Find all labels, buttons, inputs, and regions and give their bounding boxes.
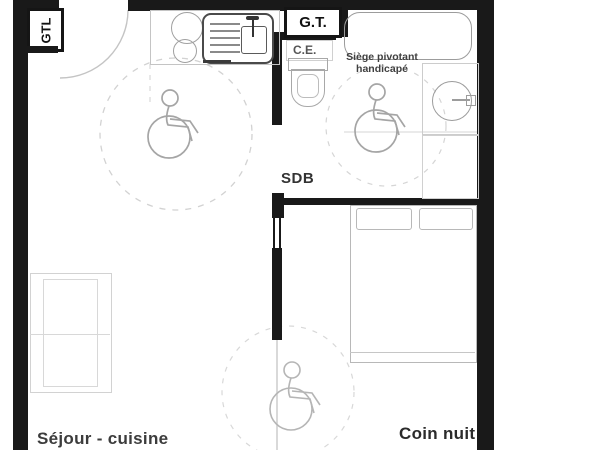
ce-label: C.E.	[293, 43, 316, 57]
gtl-label: GTL	[38, 17, 53, 43]
washbasin-faucet-base	[466, 95, 476, 106]
shower-area	[422, 135, 479, 199]
wall-gtl-stub	[27, 46, 58, 53]
toilet-bowl	[297, 74, 319, 98]
gt-box: G.T.	[284, 7, 342, 38]
sofa-cushion	[43, 279, 98, 387]
bathroom-label: SDB	[281, 170, 314, 187]
wheelchair-icon-bathroom	[355, 84, 405, 152]
bedroom-label: Coin nuit	[399, 424, 475, 444]
wall-left	[13, 0, 28, 450]
wall-top-right	[338, 0, 478, 10]
sink-drainer-line	[210, 30, 240, 32]
wall-partition	[272, 248, 282, 340]
living-label: Séjour - cuisine	[37, 429, 168, 449]
sofa-divider-line	[30, 334, 110, 335]
sink-basin	[241, 26, 267, 54]
counter-edge-mark	[203, 60, 231, 63]
cooktop-burner-icon	[173, 39, 197, 63]
sink-drainer-line	[210, 37, 240, 39]
gt-label: G.T.	[299, 14, 327, 31]
wheelchair-turning-circle-living	[100, 58, 252, 210]
floor-plan: GTL G.T. C.E. Siège pivotant handicapé S…	[0, 0, 600, 450]
wall-partition-post	[272, 193, 284, 218]
seat-note: Siège pivotant handicapé	[336, 51, 428, 75]
wall-pocket-door-rail-right	[279, 218, 281, 248]
wall-right	[477, 0, 494, 450]
pillow-icon	[419, 208, 473, 230]
sink-drainer-line	[210, 44, 240, 46]
sink-drainer-line	[210, 23, 240, 25]
wheelchair-icon-living	[148, 90, 198, 158]
pillow-icon	[356, 208, 412, 230]
bed-fold-line	[350, 352, 475, 353]
wall-pocket-door-rail-left	[273, 218, 275, 248]
door-swing-arc-entrance	[60, 10, 128, 78]
sink-drainer-line	[210, 51, 240, 53]
kitchen-sink-icon	[202, 13, 274, 64]
wall-bathroom-bottom	[272, 198, 477, 205]
faucet-icon	[252, 19, 254, 37]
